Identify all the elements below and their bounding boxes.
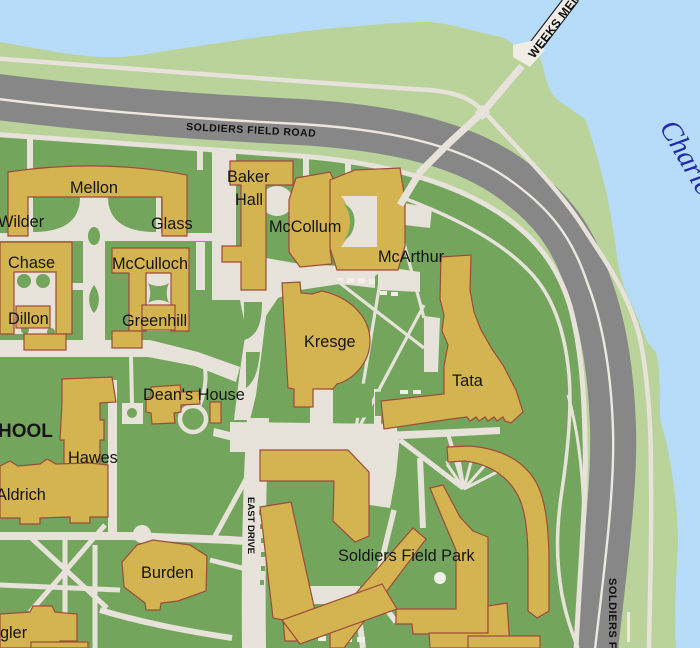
svg-text:Chase: Chase — [8, 254, 55, 272]
svg-text:EAST DRIVE: EAST DRIVE — [245, 497, 256, 554]
svg-text:HOOL: HOOL — [0, 421, 53, 442]
svg-text:McCollum: McCollum — [269, 218, 341, 236]
svg-text:Burden: Burden — [141, 564, 194, 582]
svg-text:Tata: Tata — [452, 372, 484, 390]
svg-text:McCulloch: McCulloch — [112, 255, 188, 273]
svg-text:Hawes: Hawes — [68, 449, 118, 467]
svg-text:Baker: Baker — [227, 168, 270, 186]
svg-text:Soldiers Field Park: Soldiers Field Park — [338, 547, 475, 565]
svg-text:gler: gler — [0, 624, 28, 642]
svg-text:McArthur: McArthur — [378, 248, 445, 266]
svg-text:Greenhill: Greenhill — [122, 312, 187, 330]
svg-text:Dean's House: Dean's House — [143, 386, 245, 404]
svg-text:SOLDIERS F: SOLDIERS F — [606, 578, 618, 648]
svg-text:Hall: Hall — [235, 191, 263, 209]
svg-text:Mellon: Mellon — [70, 179, 118, 197]
svg-text:Wilder: Wilder — [0, 213, 45, 231]
svg-text:Kresge: Kresge — [304, 333, 356, 351]
svg-text:Aldrich: Aldrich — [0, 486, 46, 504]
svg-text:Glass: Glass — [151, 215, 193, 233]
svg-text:Dillon: Dillon — [8, 310, 49, 328]
